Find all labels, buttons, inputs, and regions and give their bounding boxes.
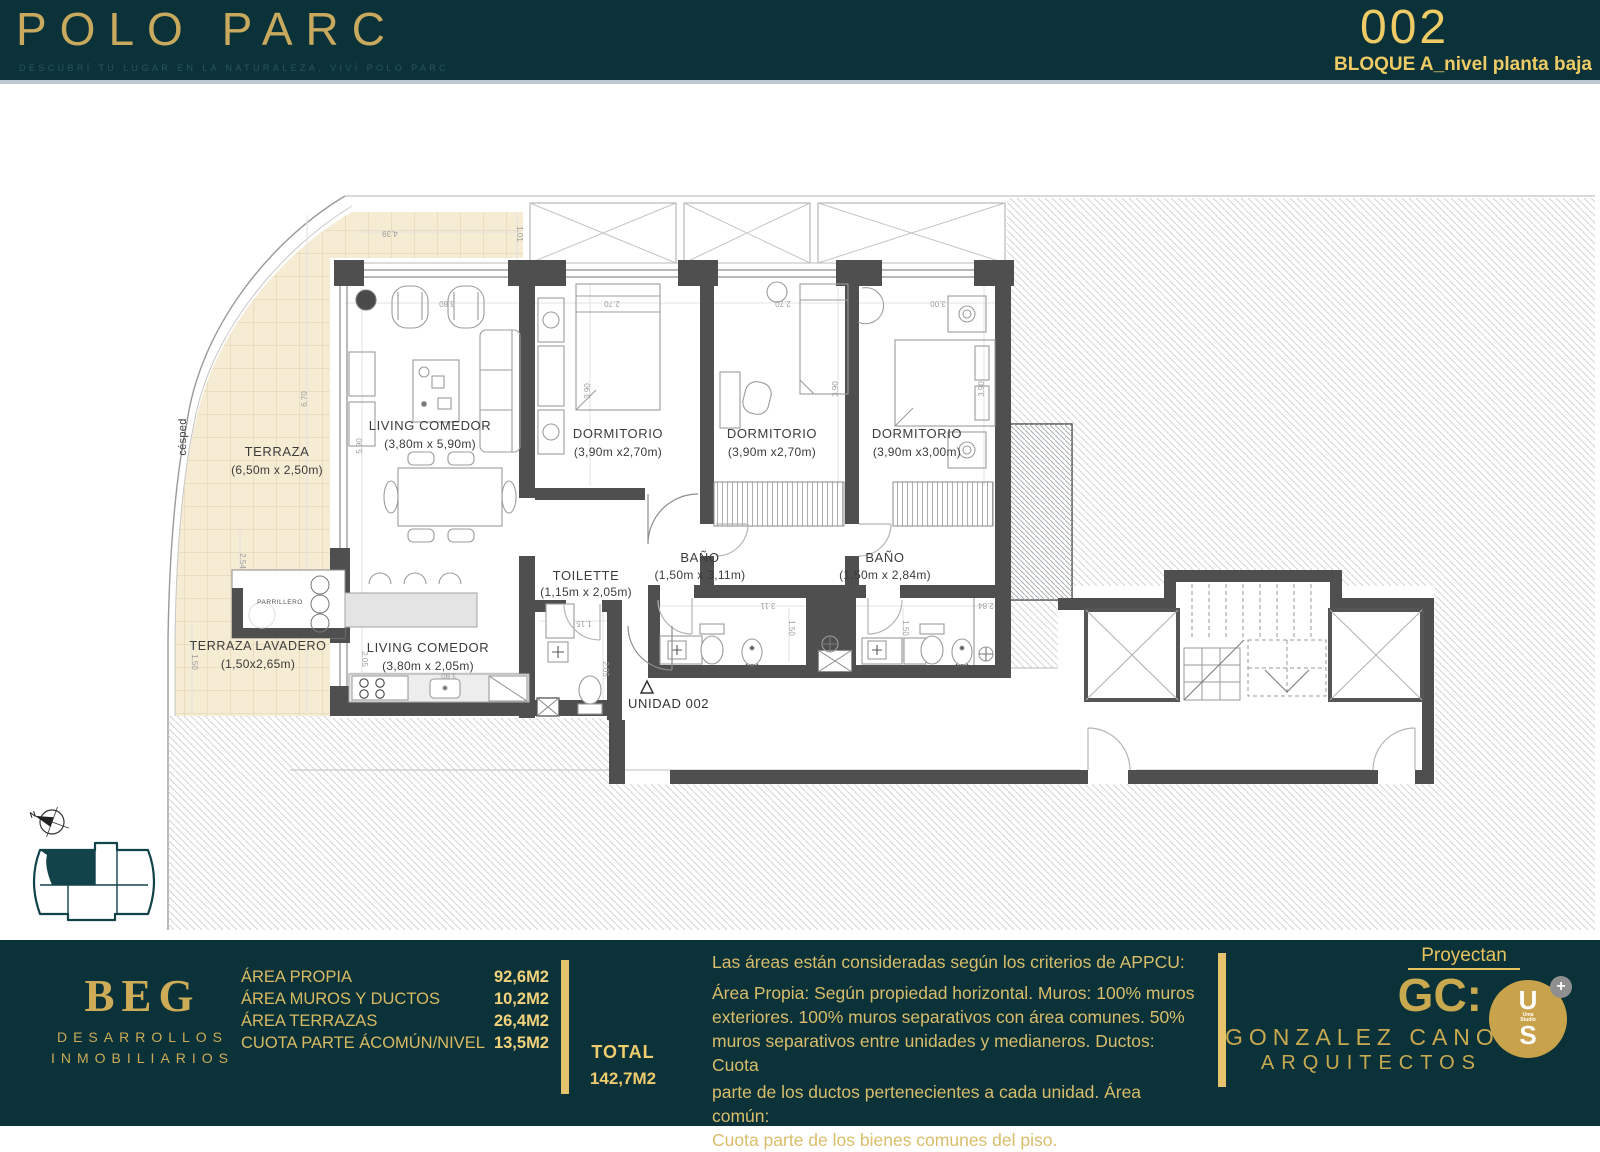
block-label: BLOQUE A_nivel planta baja [1334,54,1592,76]
unit-number: 002 [1360,0,1449,55]
svg-text:3.11: 3.11 [760,601,776,610]
lavadero-label: TERRAZA LAVADERO [190,639,327,653]
bano1-size: (1,50m x 3,11m) [655,568,746,582]
total-label: TOTAL [568,1042,678,1063]
brand-tagline: DESCUBRÍ TU LUGAR EN LA NATURALEZA, VIVÍ… [19,63,455,73]
dorm1-label: DORMITORIO [573,426,663,441]
dorm3-size: (3,90m x3,00m) [873,445,961,459]
developer-logo: BEG DESARROLLOS INMOBILIARIOS [35,970,250,1066]
lavadero-size: (1,50x2,65m) [221,657,295,671]
criteria-note: Las áreas están consideradas según los c… [712,950,1202,1152]
svg-text:2.84: 2.84 [978,601,994,610]
architects-gc: GC: [1240,968,1482,1022]
svg-text:1.50: 1.50 [190,654,199,670]
living-label: LIVING COMEDOR [369,418,492,433]
key-plan [34,843,154,920]
area-row: CUOTA PARTE ÁCOMÚN/NIVEL 13,5M2 [241,1032,549,1054]
svg-text:1.50: 1.50 [901,620,910,636]
uma-studio-logo: U Uma Studio S + [1489,980,1567,1058]
terraza-size: (6,50m x 2,50m) [231,463,323,477]
area-row: ÁREA TERRAZAS 26,4M2 [241,1010,549,1032]
plus-icon: + [1550,976,1572,998]
proyectan-heading: Proyectan [1408,945,1520,970]
footer-bar: BEG DESARROLLOS INMOBILIARIOS ÁREA PROPI… [0,940,1600,1126]
toilette-size: (1,15m x 2,05m) [540,585,632,599]
svg-text:4.39: 4.39 [382,229,398,238]
dorm1-size: (3,90m x2,70m) [574,445,662,459]
developer-line1: DESARROLLOS [35,1029,250,1045]
brand-logo: POLO PARC [16,2,398,56]
svg-text:2.54: 2.54 [238,553,247,569]
header-divider [0,80,1600,84]
architects-name: GONZALEZ CANO [1225,1024,1482,1051]
toilette-label: TOILETTE [553,568,620,583]
bano2-label: BAÑO [865,550,904,565]
svg-text:3.00: 3.00 [930,299,946,308]
cesped-label: césped [177,418,189,455]
svg-text:1.01: 1.01 [515,226,524,242]
parrillero-label: PARRILLERO [257,599,303,606]
duct-shaft [1010,424,1072,600]
dorm2-label: DORMITORIO [727,426,817,441]
svg-text:6.70: 6.70 [300,391,309,407]
living-size: (3,80m x 5,90m) [384,437,476,451]
terraza-label: TERRAZA [245,444,310,459]
svg-text:2.70: 2.70 [604,299,620,308]
svg-text:2.05: 2.05 [601,661,610,677]
dorm2-size: (3,90m x2,70m) [728,445,816,459]
unit-label: UNIDAD 002 [628,696,709,711]
svg-text:2.05: 2.05 [360,651,369,667]
compass-icon: N [29,801,75,843]
svg-text:1.50: 1.50 [787,620,796,636]
svg-text:3.80: 3.80 [441,671,457,680]
developer-name: BEG [35,970,250,1022]
svg-text:2.70: 2.70 [775,299,791,308]
svg-text:5.90: 5.90 [355,438,364,454]
kitchen-size: (3,80m x 2,05m) [382,659,474,673]
svg-text:3.90: 3.90 [831,381,840,397]
total-block: TOTAL 142,7M2 [568,1042,678,1089]
area-table: ÁREA PROPIA 92,6M2 ÁREA MUROS Y DUCTOS 1… [241,966,549,1054]
svg-text:3.90: 3.90 [583,383,592,399]
svg-text:1.15: 1.15 [576,619,592,628]
kitchen-label: LIVING COMEDOR [367,640,490,655]
bano1-label: BAÑO [680,550,719,565]
bano2-size: (1,50m x 2,84m) [839,568,931,582]
plan-sheet: { "header": { "brand": "POLO PARC", "tag… [0,0,1600,1126]
developer-line2: INMOBILIARIOS [35,1050,250,1066]
compass-n: N [29,809,38,820]
total-value: 142,7M2 [568,1069,678,1089]
area-row: ÁREA PROPIA 92,6M2 [241,966,549,988]
architects-name2: ARQUITECTOS [1225,1052,1482,1075]
dorm3-label: DORMITORIO [872,426,962,441]
svg-text:3.80: 3.80 [439,299,455,308]
header-bar: POLO PARC DESCUBRÍ TU LUGAR EN LA NATURA… [0,0,1600,80]
area-row: ÁREA MUROS Y DUCTOS 10,2M2 [241,988,549,1010]
svg-text:3.90: 3.90 [977,381,986,397]
